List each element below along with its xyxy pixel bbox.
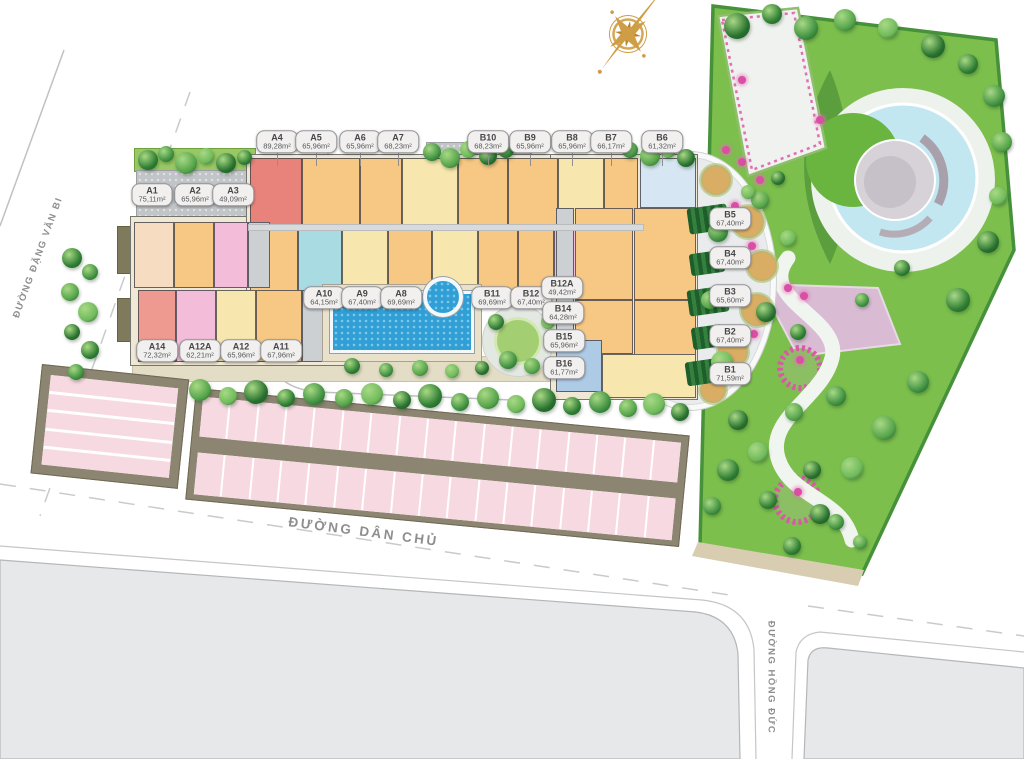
city-block-southwest (0, 546, 756, 759)
street-label-right: ĐƯỜNG HỒNG ĐỨC (766, 603, 777, 753)
garden (692, 6, 1014, 586)
city-block-southeast (792, 632, 1024, 759)
road-left (0, 50, 512, 516)
compass-rose-icon (573, 0, 694, 85)
base-map (0, 0, 1024, 759)
site-plan: ĐƯỜNG ĐẶNG VĂN BI ĐƯỜNG DÂN CHỦ ĐƯỜNG HỒ… (0, 0, 1024, 759)
